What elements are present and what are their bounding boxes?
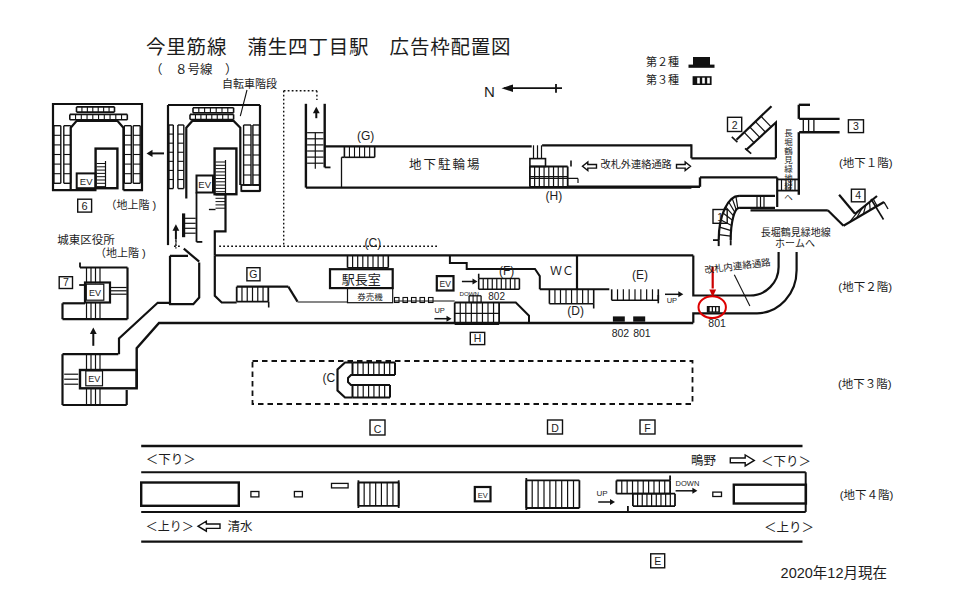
svg-text:E: E	[654, 553, 661, 568]
svg-text:H: H	[474, 330, 482, 345]
svg-text:清水: 清水	[228, 516, 254, 535]
svg-text:N: N	[484, 80, 495, 101]
svg-text:(地下１階): (地下１階)	[839, 154, 893, 170]
svg-text:(D): (D)	[567, 301, 584, 318]
svg-text:1: 1	[717, 209, 723, 224]
svg-text:ホームへ: ホームへ	[775, 235, 815, 250]
svg-text:2: 2	[732, 117, 738, 132]
svg-text:（地上階 ): （地上階 )	[95, 244, 146, 260]
svg-text:EV: EV	[478, 489, 488, 500]
svg-text:EV: EV	[198, 177, 211, 191]
svg-text:自転車階段: 自転車階段	[222, 75, 277, 91]
svg-text:券売機: 券売機	[357, 290, 383, 302]
svg-text:（地上階 ): （地上階 )	[106, 196, 157, 212]
svg-text:＜上り＞: ＜上り＞	[764, 517, 814, 536]
svg-text:EV: EV	[440, 277, 452, 289]
svg-text:UP: UP	[667, 294, 677, 305]
svg-text:(地下２階): (地下２階)	[838, 278, 892, 294]
svg-text:(F): (F)	[499, 261, 514, 278]
svg-text:UP: UP	[434, 304, 444, 315]
svg-text:(H): (H)	[546, 186, 563, 203]
svg-text:(G): (G)	[357, 126, 374, 143]
svg-text:801: 801	[633, 325, 651, 340]
svg-text:7: 7	[63, 274, 69, 289]
svg-text:802: 802	[488, 288, 505, 303]
svg-text:ＷＣ: ＷＣ	[550, 261, 574, 278]
svg-text:DOWN: DOWN	[676, 477, 700, 488]
svg-text:6: 6	[82, 197, 88, 213]
svg-text:D: D	[551, 420, 559, 435]
svg-text:鴫野: 鴫野	[691, 450, 717, 469]
svg-text:3: 3	[853, 118, 859, 133]
svg-text:今里筋線 蒲生四丁目駅 広告枠配置図: 今里筋線 蒲生四丁目駅 広告枠配置図	[146, 31, 511, 60]
svg-text:＜下り＞: ＜下り＞	[761, 451, 811, 470]
svg-text:802: 802	[612, 325, 630, 340]
svg-text:(E): (E)	[632, 265, 648, 282]
svg-text:4: 4	[855, 187, 861, 202]
svg-text:(C: (C	[323, 368, 336, 385]
svg-text:駅長室: 駅長室	[342, 269, 381, 288]
svg-text:(地下３階): (地下３階)	[838, 375, 892, 391]
svg-text:第２種: 第２種	[646, 53, 679, 69]
svg-text:G: G	[249, 266, 257, 281]
svg-text:改札外連絡通路: 改札外連絡通路	[601, 156, 672, 171]
svg-text:＜上り＞: ＜上り＞	[146, 517, 194, 534]
svg-text:(地下４階): (地下４階)	[840, 486, 894, 502]
svg-text:801: 801	[708, 315, 726, 330]
svg-text:EV: EV	[80, 174, 93, 188]
svg-text:へ: へ	[784, 190, 793, 202]
svg-text:EV: EV	[89, 286, 101, 299]
svg-text:C: C	[374, 421, 382, 436]
svg-text:＜下り＞: ＜下り＞	[146, 449, 196, 468]
svg-text:UP: UP	[597, 487, 608, 498]
svg-text:第３種: 第３種	[646, 71, 679, 87]
svg-text:地下駐輪場: 地下駐輪場	[409, 154, 482, 173]
svg-text:F: F	[644, 420, 650, 435]
svg-text:EV: EV	[88, 372, 100, 385]
svg-text:2020年12月現在: 2020年12月現在	[781, 561, 887, 582]
svg-text:(C): (C)	[365, 233, 382, 250]
